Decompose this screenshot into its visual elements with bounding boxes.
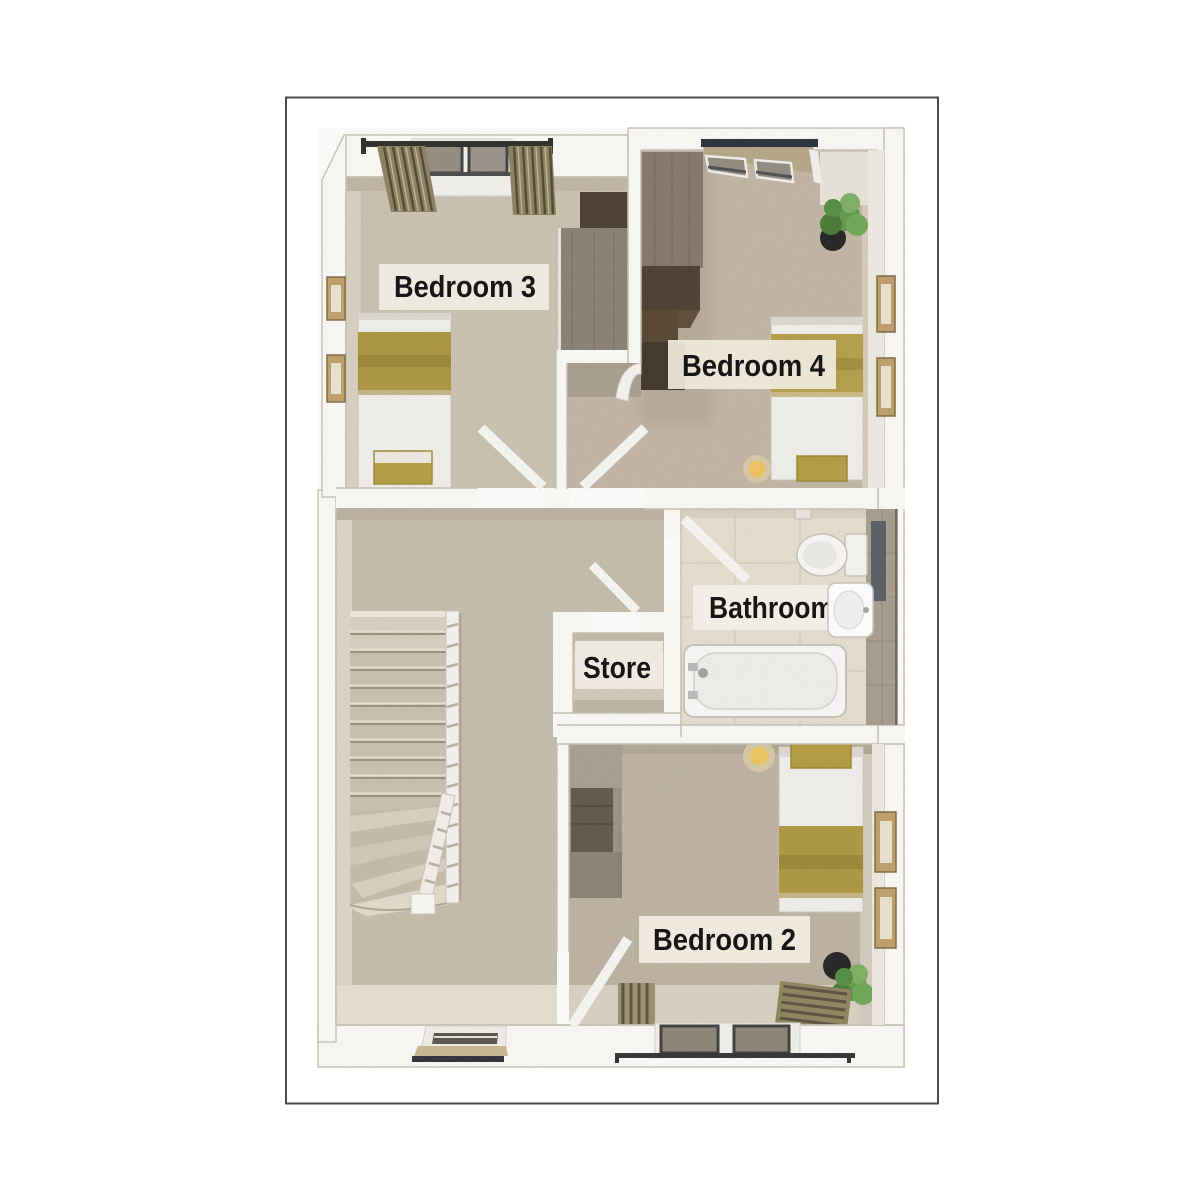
svg-text:Bedroom 3: Bedroom 3 <box>394 269 536 304</box>
svg-text:Bedroom 4: Bedroom 4 <box>682 348 826 383</box>
svg-text:Bedroom 2: Bedroom 2 <box>653 922 796 957</box>
svg-text:Bathroom: Bathroom <box>709 590 834 625</box>
svg-text:Store: Store <box>583 650 651 685</box>
